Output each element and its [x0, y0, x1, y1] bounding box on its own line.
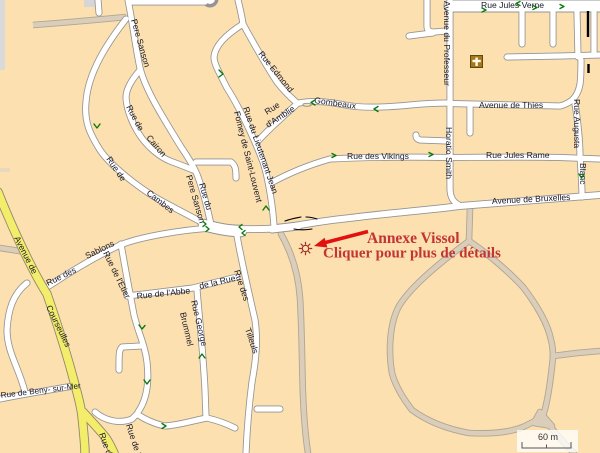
- svg-text:Avenue du Professeur: Avenue du Professeur: [442, 1, 452, 86]
- svg-text:Horatio Smith: Horatio Smith: [444, 127, 454, 179]
- svg-text:60 m: 60 m: [538, 432, 558, 442]
- svg-text:Cliquer pour plus de détails: Cliquer pour plus de détails: [323, 246, 501, 262]
- svg-text:Rue Jules Rame: Rue Jules Rame: [486, 150, 550, 160]
- svg-text:Rue Augusta: Rue Augusta: [572, 99, 582, 148]
- svg-text:Annexe Vissol: Annexe Vissol: [367, 230, 460, 247]
- svg-text:Avenue de Thies: Avenue de Thies: [479, 100, 543, 110]
- svg-text:Rue des Vikings: Rue des Vikings: [347, 151, 409, 161]
